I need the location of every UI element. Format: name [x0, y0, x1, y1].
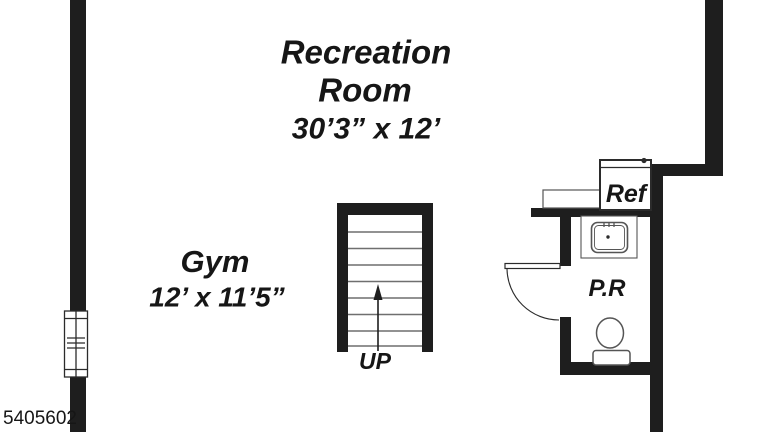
recreation-room-name-line2: Room — [318, 72, 412, 109]
window-icon — [65, 311, 88, 377]
gym-dimensions: 12’ x 11’5” — [149, 282, 284, 313]
floor-plan: Recreation Room 30’3” x 12’ Gym 12’ x 11… — [0, 0, 768, 432]
powder-room-left-wall-upper — [560, 217, 571, 266]
recreation-room-dimensions: 30’3” x 12’ — [292, 113, 441, 146]
refrigerator-hinge-dot — [641, 158, 646, 163]
recreation-room-name-line1: Recreation — [281, 34, 452, 71]
sink-icon — [581, 216, 637, 258]
toilet-icon — [593, 318, 630, 365]
refrigerator-label: Ref — [606, 180, 649, 208]
stair-left-wall — [337, 203, 348, 352]
top-right-exterior-wall — [705, 0, 723, 176]
stair-right-wall — [422, 203, 433, 352]
counter-outline — [543, 190, 600, 208]
door-swing-arc — [507, 269, 559, 320]
corner-number: 5405602 — [3, 408, 77, 429]
powder-room-label: P.R — [589, 275, 627, 302]
sink-drain-dot — [606, 235, 609, 238]
floor-plan-svg: Recreation Room 30’3” x 12’ Gym 12’ x 11… — [0, 0, 768, 432]
stairs-up-label: UP — [359, 348, 392, 374]
stair-top-wall — [337, 203, 433, 215]
gym-name: Gym — [181, 244, 250, 279]
stair-treads — [348, 232, 422, 346]
door-leaf — [505, 264, 560, 269]
toilet-tank — [593, 351, 630, 366]
up-arrow-head — [374, 284, 383, 300]
labels: Recreation Room 30’3” x 12’ Gym 12’ x 11… — [3, 34, 649, 430]
door — [505, 264, 560, 321]
stair-up-arrow — [374, 284, 383, 351]
toilet-bowl — [597, 318, 624, 348]
